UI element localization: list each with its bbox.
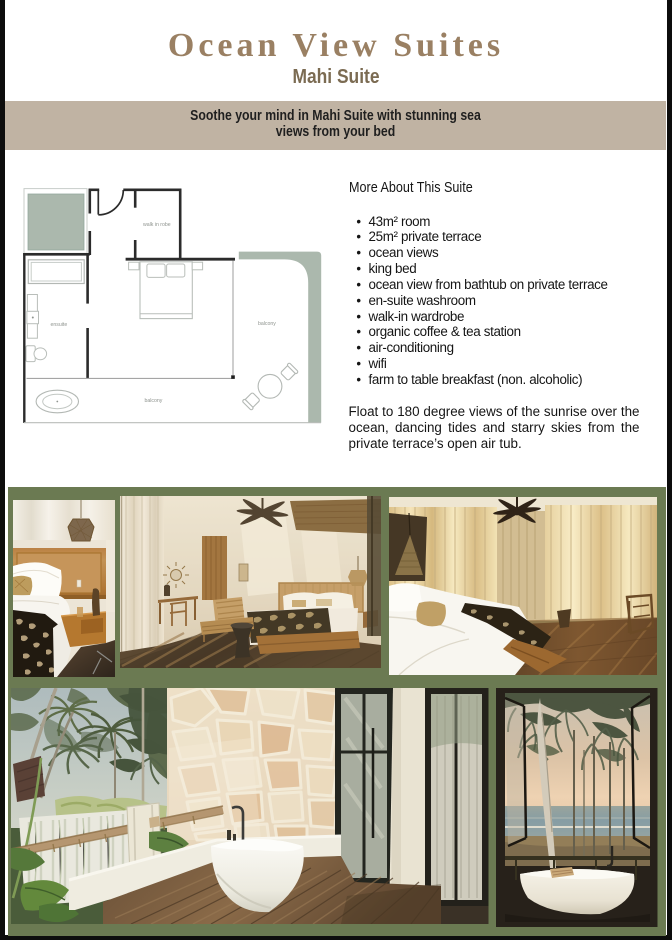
svg-text:ensuite: ensuite xyxy=(51,322,68,328)
svg-text:balcony: balcony xyxy=(258,321,276,327)
svg-text:walk in robe: walk in robe xyxy=(143,222,171,228)
svg-text:balcony: balcony xyxy=(145,398,163,404)
